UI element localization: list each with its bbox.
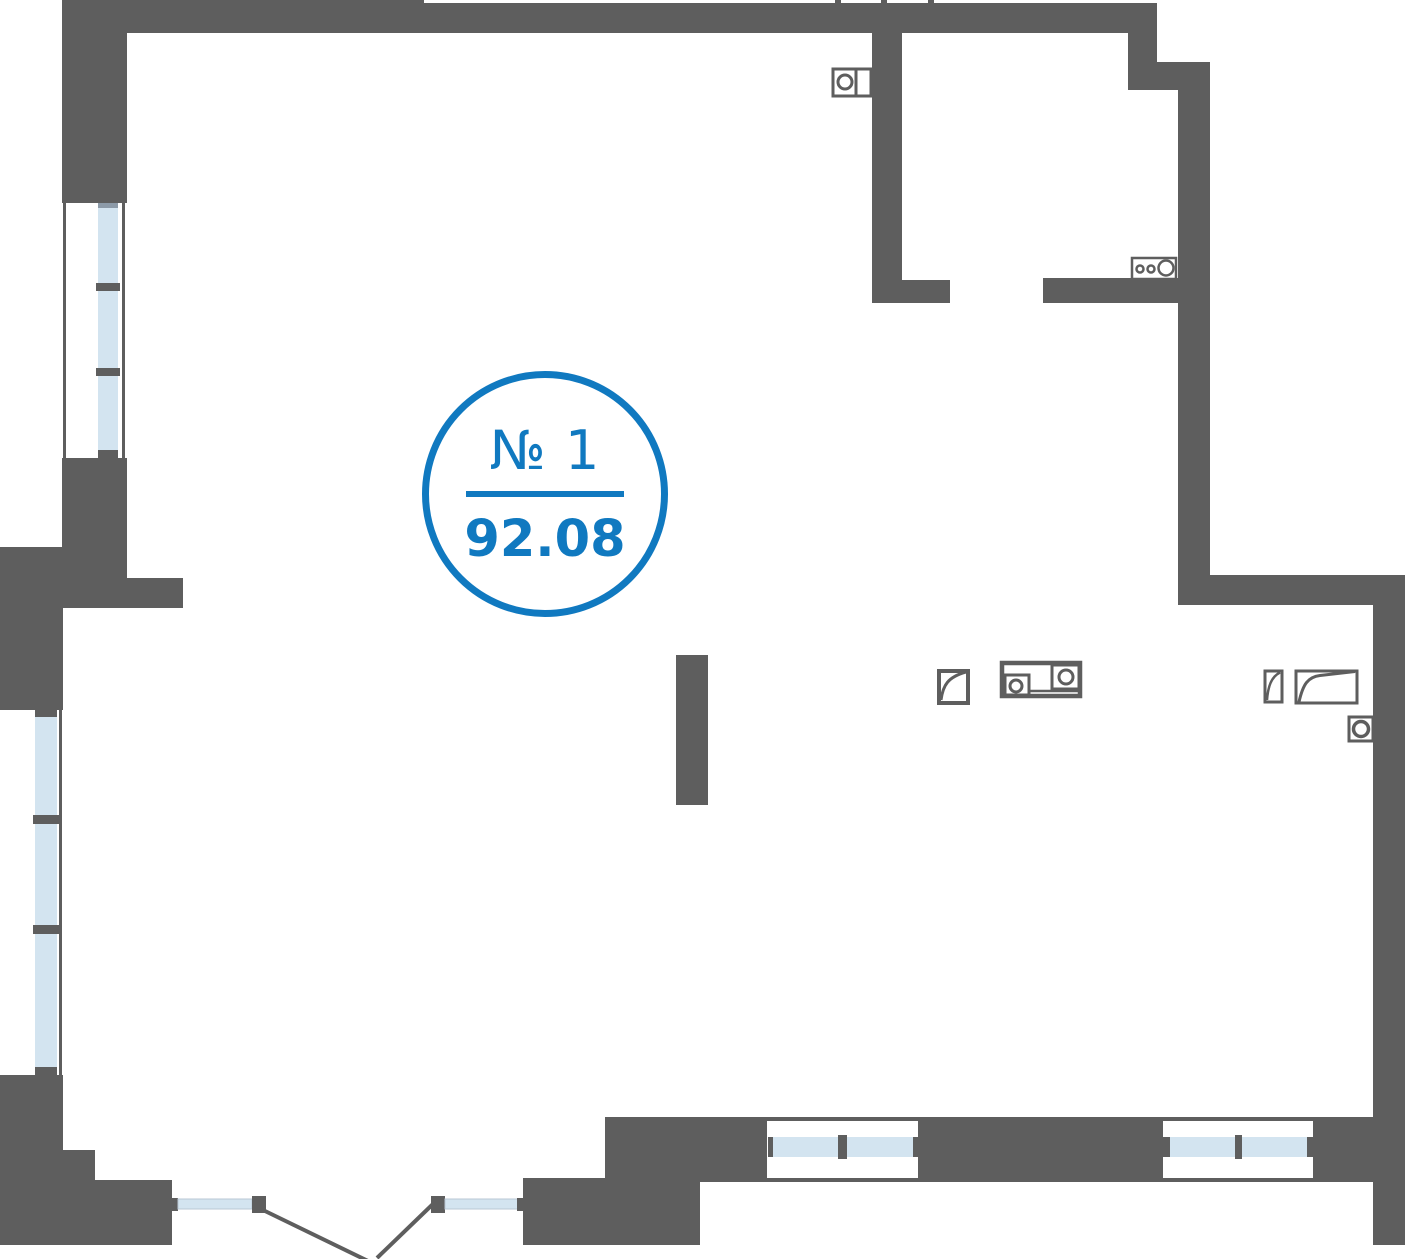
bottom-window-right bbox=[1163, 1135, 1313, 1159]
shower-tray-icon bbox=[939, 671, 968, 703]
door-leaf-swing bbox=[377, 1204, 433, 1258]
wall-segment bbox=[1373, 605, 1405, 1245]
wall-segment bbox=[0, 547, 63, 710]
window-glass bbox=[35, 716, 57, 1067]
walls bbox=[0, 0, 1405, 1245]
window-mullion bbox=[33, 815, 59, 824]
window-lintel bbox=[767, 1117, 918, 1121]
lounge-chair-icon bbox=[1296, 671, 1357, 703]
window-sill bbox=[1163, 1178, 1313, 1182]
window-frame bbox=[122, 203, 125, 458]
wall-segment bbox=[62, 0, 1157, 33]
door-threshold bbox=[445, 1199, 518, 1209]
window-mullion bbox=[96, 283, 120, 291]
left-lower-window bbox=[33, 710, 62, 1075]
bathroom-wall bbox=[872, 33, 902, 303]
unit-badge[interactable]: № 1 92.08 bbox=[422, 371, 668, 617]
window-mullion bbox=[33, 925, 59, 934]
window-glass bbox=[1170, 1137, 1235, 1157]
door-hinge-block bbox=[431, 1196, 445, 1213]
bathroom-wall-stub bbox=[902, 280, 950, 303]
wall-segment bbox=[523, 1178, 700, 1245]
washing-machine-icon bbox=[833, 69, 871, 96]
wall-tick bbox=[835, 0, 841, 4]
door-jamb bbox=[517, 1198, 524, 1211]
window-lintel bbox=[1163, 1117, 1313, 1121]
wall-segment bbox=[918, 1117, 1163, 1182]
left-upper-window bbox=[63, 203, 125, 458]
door-hinge-block bbox=[252, 1196, 266, 1213]
center-pillar bbox=[676, 655, 708, 805]
window-frame bbox=[59, 710, 62, 1075]
floor-plan-svg bbox=[0, 0, 1405, 1259]
window-glass bbox=[847, 1137, 913, 1157]
sink-counter-icon bbox=[1002, 663, 1080, 696]
window-cap bbox=[98, 203, 118, 208]
wall-stub bbox=[127, 578, 183, 608]
door-jamb bbox=[172, 1198, 178, 1211]
wall-segment bbox=[605, 1117, 767, 1182]
window-frame bbox=[63, 203, 66, 458]
window-glass bbox=[773, 1137, 838, 1157]
door-leaf-swing bbox=[265, 1211, 368, 1259]
unit-area: 92.08 bbox=[464, 514, 625, 565]
window-cap bbox=[913, 1137, 918, 1157]
window-glass bbox=[98, 206, 118, 455]
window-mullion bbox=[838, 1135, 847, 1159]
window-cap bbox=[768, 1137, 773, 1157]
window-glass bbox=[1242, 1137, 1307, 1157]
window-cap bbox=[35, 1067, 57, 1075]
window-mullion bbox=[96, 368, 120, 376]
wall-tick bbox=[928, 0, 934, 4]
wall-segment bbox=[1178, 62, 1210, 575]
bathroom-wall bbox=[1043, 278, 1178, 303]
window-cap bbox=[1163, 1137, 1170, 1157]
window-mullion bbox=[1235, 1135, 1242, 1159]
wall-segment bbox=[0, 1180, 172, 1245]
wall-segment bbox=[1128, 62, 1210, 90]
chair-icon bbox=[1265, 671, 1282, 702]
bottom-window-left bbox=[768, 1135, 918, 1159]
wall-segment bbox=[62, 458, 127, 608]
window-cap bbox=[1307, 1137, 1313, 1157]
unit-number: № 1 bbox=[490, 424, 601, 478]
wall-tick bbox=[881, 0, 887, 4]
wall-segment bbox=[62, 33, 127, 203]
wall-segment bbox=[1178, 575, 1405, 605]
window-cap bbox=[98, 450, 118, 458]
door-threshold bbox=[178, 1199, 252, 1209]
plan-cut-line bbox=[424, 0, 1157, 3]
entry-double-door bbox=[172, 1196, 524, 1259]
cooktop-icon bbox=[1132, 258, 1176, 279]
wall-boiler-icon bbox=[1349, 717, 1373, 741]
floor-plan: № 1 92.08 bbox=[0, 0, 1405, 1259]
window-sill bbox=[767, 1178, 918, 1182]
window-cap bbox=[35, 710, 57, 717]
badge-divider bbox=[466, 491, 624, 497]
